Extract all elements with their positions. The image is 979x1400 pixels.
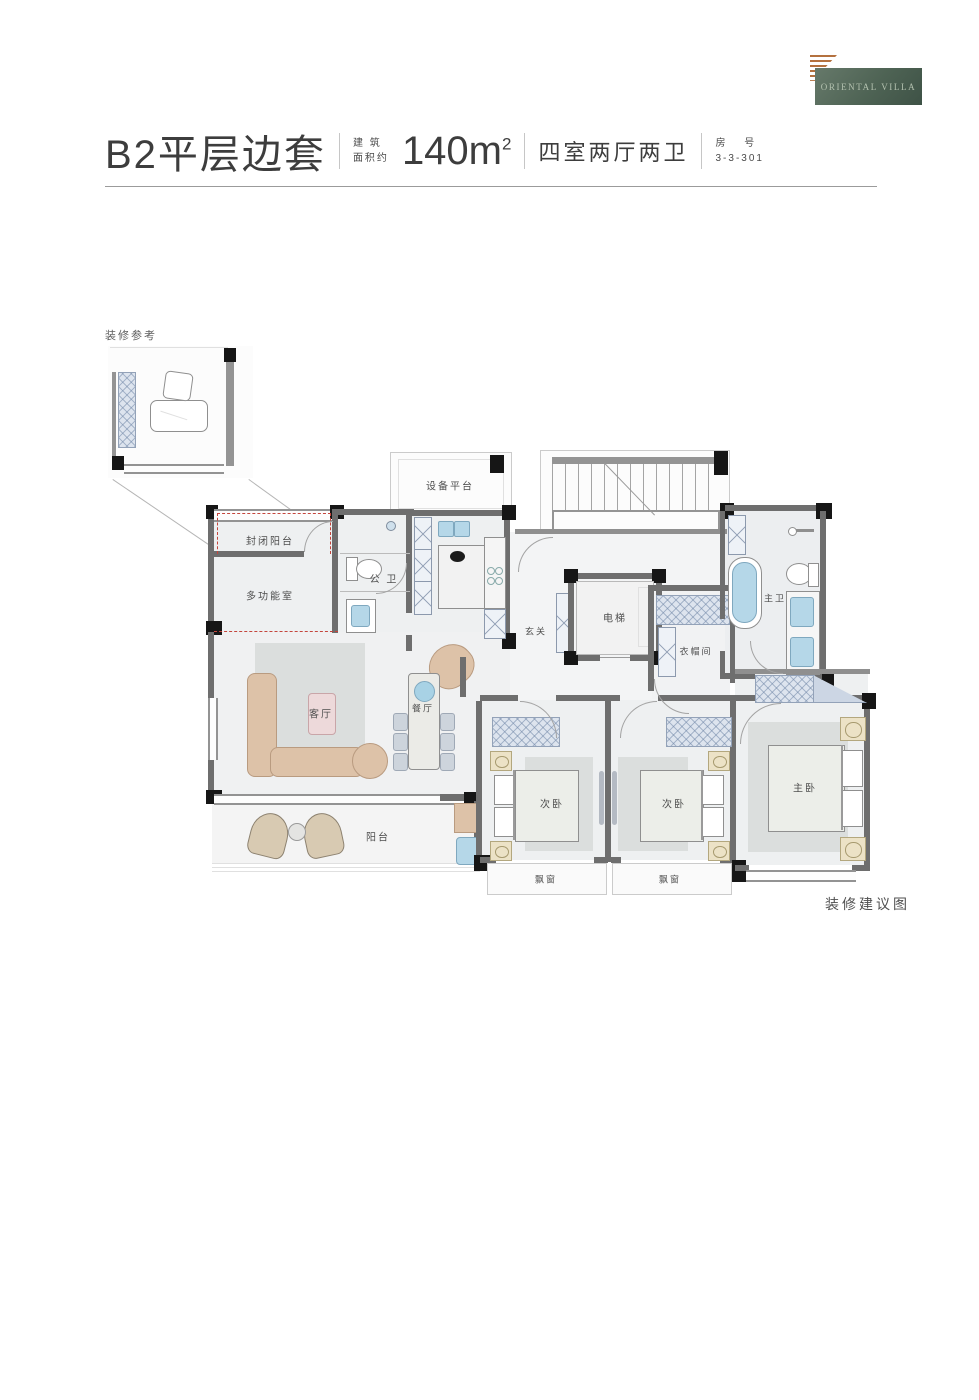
- room-label-dining-room: 餐厅: [412, 702, 434, 715]
- sofa: [270, 747, 364, 777]
- kitchen-sink: [438, 521, 454, 537]
- ottoman: [352, 743, 388, 779]
- room-label-master-bathroom: 主卫: [764, 592, 786, 605]
- reform-dashed-line: [214, 631, 338, 632]
- floor-plan-page: ORIENTAL VILLA B2平层边套 建 筑 面积约 140m2 四室两厅…: [0, 0, 979, 1400]
- window: [746, 870, 856, 882]
- room-label-secondary-bedroom: 次卧: [540, 796, 564, 811]
- wall: [720, 511, 725, 619]
- bath-cabinet: [728, 515, 746, 555]
- dining-chair: [440, 733, 455, 751]
- balcony-rail: [212, 863, 480, 868]
- stairs: [552, 464, 720, 510]
- headboard: [841, 745, 843, 830]
- nightstand: [708, 751, 730, 771]
- area-value: 140m2: [402, 129, 512, 174]
- wall-panel: [612, 771, 617, 825]
- wall: [460, 657, 466, 697]
- wall: [412, 510, 508, 516]
- wall-corner: [502, 505, 516, 520]
- wall-panel: [599, 771, 604, 825]
- window: [208, 698, 218, 760]
- nightstand: [708, 841, 730, 861]
- dining-chair: [440, 753, 455, 771]
- wall-corner: [224, 348, 236, 362]
- wall: [476, 701, 482, 861]
- wall: [605, 700, 611, 862]
- wall: [208, 509, 214, 633]
- divider-line: [340, 591, 410, 592]
- kitchen-cabinet: [484, 609, 506, 639]
- kitchen-cabinet: [414, 517, 432, 551]
- area-number: 140m: [402, 129, 502, 173]
- side-table: [288, 823, 306, 841]
- room-label-secondary-bedroom: 次卧: [662, 796, 686, 811]
- stove-burner: [487, 577, 495, 585]
- toilet-tank: [808, 563, 819, 587]
- inset-label: 装修参考: [105, 327, 157, 343]
- wall: [735, 669, 870, 674]
- wall: [568, 573, 662, 579]
- wardrobe-cabinet: [658, 627, 676, 677]
- brand-logo-text: ORIENTAL VILLA: [821, 82, 916, 92]
- room-number-block: 房 号 3-3-301: [715, 136, 763, 167]
- plan-caption: 装修建议图: [760, 894, 910, 914]
- title-block: B2平层边套 建 筑 面积约 140m2 四室两厅两卫 房 号 3-3-301: [105, 122, 764, 180]
- room-label-living-room: 客厅: [309, 706, 333, 721]
- pillow: [702, 775, 724, 805]
- area-superscript: 2: [502, 134, 511, 153]
- area-prefix: 建 筑 面积约: [353, 136, 389, 167]
- wall: [112, 372, 116, 464]
- area-prefix-top: 建 筑: [353, 136, 389, 152]
- leader-line: [112, 479, 213, 548]
- wall: [725, 505, 824, 511]
- balcony-rail: [212, 871, 480, 873]
- wall: [515, 529, 727, 534]
- towel-hook: [788, 527, 797, 536]
- room-label-master-bedroom: 主卧: [793, 780, 817, 795]
- wall-corner: [490, 455, 504, 473]
- wall-corner: [862, 693, 876, 709]
- nightstand: [840, 717, 866, 741]
- shower-head: [386, 521, 396, 531]
- sink: [790, 637, 814, 667]
- wall: [480, 695, 518, 701]
- wall: [208, 632, 214, 698]
- divider: [524, 133, 525, 169]
- room-label-balcony: 阳台: [366, 829, 390, 844]
- sink: [790, 597, 814, 627]
- wall: [406, 509, 412, 613]
- divider: [701, 133, 702, 169]
- nightstand: [490, 841, 512, 861]
- washbasin: [351, 605, 370, 627]
- kitchen-cabinet: [414, 549, 432, 583]
- wall-corner: [652, 569, 666, 583]
- stove-burner: [487, 567, 495, 575]
- room-label-enclosed-balcony: 封闭阳台: [246, 533, 294, 548]
- table-plate: [414, 681, 435, 702]
- room-label-bay-window: 飘窗: [659, 873, 681, 886]
- layout-description: 四室两厅两卫: [538, 135, 688, 167]
- room-label-elevator: 电梯: [603, 610, 627, 625]
- wardrobe: [755, 675, 815, 703]
- stair-post: [552, 510, 554, 530]
- room-label-multi-function-room: 多功能室: [246, 588, 294, 603]
- stove-burner: [495, 567, 503, 575]
- room-label-foyer: 玄关: [525, 625, 547, 638]
- wall: [110, 346, 228, 348]
- kitchen-cabinet: [414, 581, 432, 615]
- stove-burner: [495, 577, 503, 585]
- wall: [406, 635, 412, 651]
- wall-corner: [714, 451, 728, 475]
- nightstand: [840, 837, 866, 861]
- wall: [568, 573, 574, 661]
- nightstand: [490, 751, 512, 771]
- room-number-value: 3-3-301: [715, 151, 763, 167]
- wall: [648, 591, 654, 691]
- wardrobe: [666, 717, 732, 747]
- room-label-cloakroom: 衣帽间: [679, 645, 712, 658]
- stair-rail: [552, 457, 720, 464]
- closet: [118, 372, 136, 448]
- wall-corner: [112, 456, 124, 470]
- wall: [208, 760, 214, 794]
- bathtub-water: [732, 562, 757, 623]
- room-label-public-bathroom: 公 卫: [370, 571, 399, 586]
- brand-logo: ORIENTAL VILLA: [815, 68, 922, 105]
- main-floor-plan: 设备平台 封闭阳台 多功能室 公 卫 玄关 电梯 衣帽间 主卫 客厅 餐厅 阳台…: [200, 445, 880, 915]
- divider: [339, 133, 340, 169]
- kettle: [450, 551, 465, 562]
- wardrobe: [656, 595, 730, 625]
- kitchen-sink: [454, 521, 470, 537]
- room-label-equipment-platform: 设备平台: [426, 478, 474, 493]
- elevator-door: [600, 657, 630, 658]
- header-rule: [105, 186, 877, 187]
- dining-chair: [393, 733, 408, 751]
- dining-chair: [440, 713, 455, 731]
- pillow: [841, 790, 863, 827]
- dining-chair: [393, 753, 408, 771]
- headboard: [513, 770, 515, 840]
- stair-rail: [552, 510, 720, 512]
- plan-name: B2平层边套: [105, 122, 326, 180]
- room-label-bay-window: 飘窗: [535, 873, 557, 886]
- area-prefix-bottom: 面积约: [353, 151, 389, 167]
- divider-line: [340, 553, 410, 554]
- pillow: [702, 807, 724, 837]
- chair: [162, 370, 194, 402]
- wall: [338, 509, 414, 515]
- dining-chair: [393, 713, 408, 731]
- room-number-label: 房 号: [715, 136, 763, 152]
- pillow: [841, 750, 863, 787]
- wall: [820, 511, 826, 677]
- headboard: [701, 770, 703, 840]
